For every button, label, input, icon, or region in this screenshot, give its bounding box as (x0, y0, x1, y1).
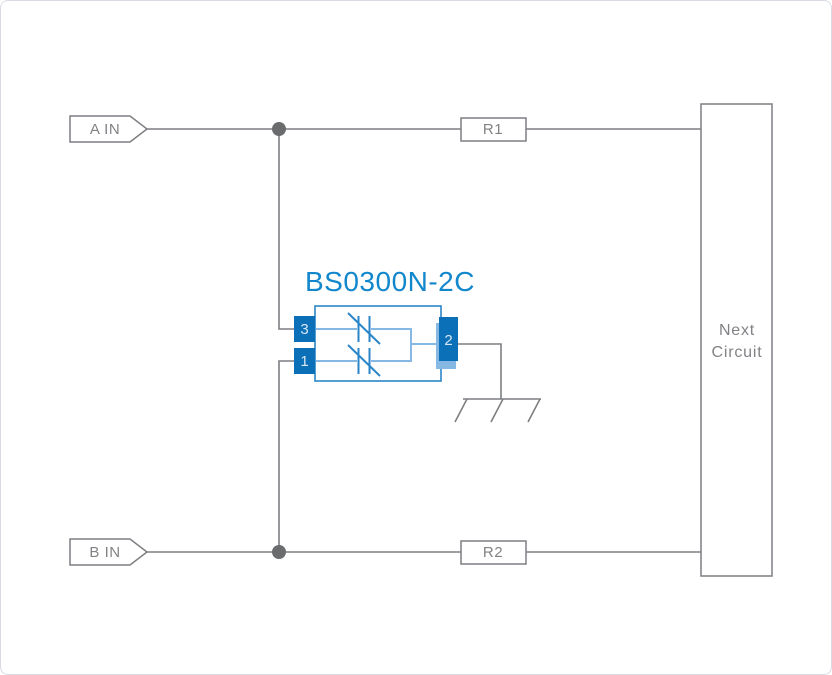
ground-hash-1 (455, 399, 467, 422)
resistor-r1: R1 (461, 118, 526, 141)
junction-dot-b (272, 545, 286, 559)
pin-3-label: 3 (300, 321, 308, 338)
input-b-label: B IN (89, 544, 120, 561)
ground-hash-3 (528, 399, 540, 422)
ground-hash-2 (491, 399, 503, 422)
input-a-connector: A IN (70, 116, 147, 142)
wire-pin2-to-ground (458, 344, 501, 399)
pin-1-label: 1 (300, 353, 308, 370)
resistor-r2-label: R2 (483, 544, 503, 561)
ground-symbol (455, 344, 541, 422)
component-title: BS0300N-2C (305, 266, 475, 297)
resistor-r2: R2 (461, 541, 526, 564)
wire-branch-a-to-pin3 (279, 129, 295, 329)
next-circuit-label-line1: Next (719, 322, 755, 339)
pin-2: 2 (436, 317, 458, 369)
schematic-canvas: A IN B IN R1 R2 Next Circuit (0, 0, 832, 675)
input-a-label: A IN (90, 121, 120, 138)
junction-dot-a (272, 122, 286, 136)
wire-branch-b-to-pin1 (279, 361, 295, 552)
next-circuit-label-line2: Circuit (712, 344, 763, 361)
next-circuit-box (701, 104, 772, 576)
pin-3: 3 (294, 316, 315, 342)
pin-2-label: 2 (444, 332, 452, 349)
next-circuit-block: Next Circuit (701, 104, 772, 576)
input-b-connector: B IN (70, 539, 147, 565)
resistor-r1-label: R1 (483, 121, 503, 138)
tvs-component: BS0300N-2C 3 (294, 266, 475, 381)
schematic-svg: A IN B IN R1 R2 Next Circuit (1, 1, 832, 675)
pin-1: 1 (294, 348, 315, 374)
